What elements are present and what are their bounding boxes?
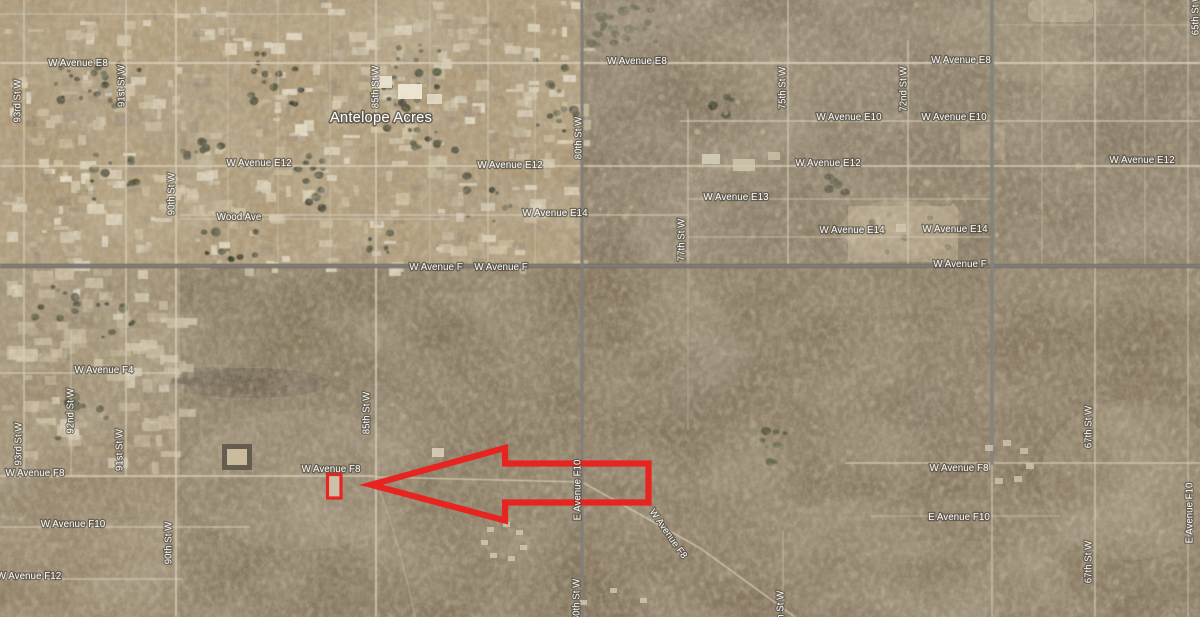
- svg-text:Wood Ave: Wood Ave: [217, 212, 262, 223]
- svg-text:85th St W: 85th St W: [362, 391, 373, 434]
- svg-text:W Avenue E13: W Avenue E13: [703, 192, 769, 203]
- svg-text:65th St W: 65th St W: [1191, 0, 1200, 35]
- svg-text:W Avenue F: W Avenue F: [474, 262, 528, 273]
- svg-text:85th St W: 85th St W: [371, 65, 382, 108]
- svg-text:W Avenue E14: W Avenue E14: [522, 208, 588, 219]
- svg-text:W Avenue F: W Avenue F: [409, 262, 463, 273]
- svg-text:W Avenue F8: W Avenue F8: [301, 464, 361, 475]
- svg-text:W Avenue E10: W Avenue E10: [921, 112, 987, 123]
- svg-text:W Avenue E14: W Avenue E14: [922, 224, 988, 235]
- svg-text:W Avenue F: W Avenue F: [933, 259, 987, 270]
- svg-text:91st St W: 91st St W: [117, 64, 128, 107]
- svg-text:E Avenue F10: E Avenue F10: [928, 512, 990, 523]
- svg-text:90th St W: 90th St W: [164, 521, 175, 564]
- svg-text:80th St W: 80th St W: [574, 116, 585, 159]
- svg-text:93rd St W: 93rd St W: [14, 422, 25, 466]
- svg-text:92nd St W: 92nd St W: [66, 388, 77, 434]
- svg-text:80th St W: 80th St W: [572, 578, 583, 617]
- svg-text:W Avenue E8: W Avenue E8: [48, 58, 108, 69]
- svg-text:W Avenue E12: W Avenue E12: [477, 160, 542, 171]
- svg-text:W Avenue F4: W Avenue F4: [74, 365, 134, 376]
- svg-text:90th St W: 90th St W: [167, 172, 178, 215]
- svg-text:E Avenue F10: E Avenue F10: [1185, 482, 1196, 543]
- svg-text:W Avenue F8: W Avenue F8: [5, 468, 65, 479]
- svg-text:E Avenue F10: E Avenue F10: [573, 459, 584, 520]
- svg-text:W Avenue E14: W Avenue E14: [819, 225, 885, 236]
- svg-text:W Avenue E8: W Avenue E8: [607, 56, 667, 67]
- svg-text:67th St W: 67th St W: [1084, 405, 1095, 448]
- svg-text:75th St W: 75th St W: [776, 590, 787, 617]
- svg-text:77th St W: 77th St W: [677, 218, 688, 261]
- svg-text:W Avenue F8: W Avenue F8: [929, 463, 989, 474]
- svg-text:W Avenue F10: W Avenue F10: [41, 519, 106, 530]
- svg-text:75th St W: 75th St W: [778, 66, 789, 109]
- svg-text:W Avenue F12: W Avenue F12: [0, 571, 61, 582]
- svg-text:W Avenue E12: W Avenue E12: [795, 158, 860, 169]
- svg-text:67th St W: 67th St W: [1084, 540, 1095, 583]
- svg-text:W Avenue E12: W Avenue E12: [1109, 155, 1174, 166]
- svg-text:72nd St W: 72nd St W: [899, 66, 910, 112]
- svg-text:W Avenue E12: W Avenue E12: [226, 158, 291, 169]
- svg-text:93rd St W: 93rd St W: [13, 79, 24, 123]
- svg-text:W Avenue E10: W Avenue E10: [816, 112, 882, 123]
- svg-text:W Avenue E8: W Avenue E8: [931, 55, 991, 66]
- svg-text:Antelope Acres: Antelope Acres: [330, 110, 432, 126]
- svg-text:91st St W: 91st St W: [115, 428, 126, 471]
